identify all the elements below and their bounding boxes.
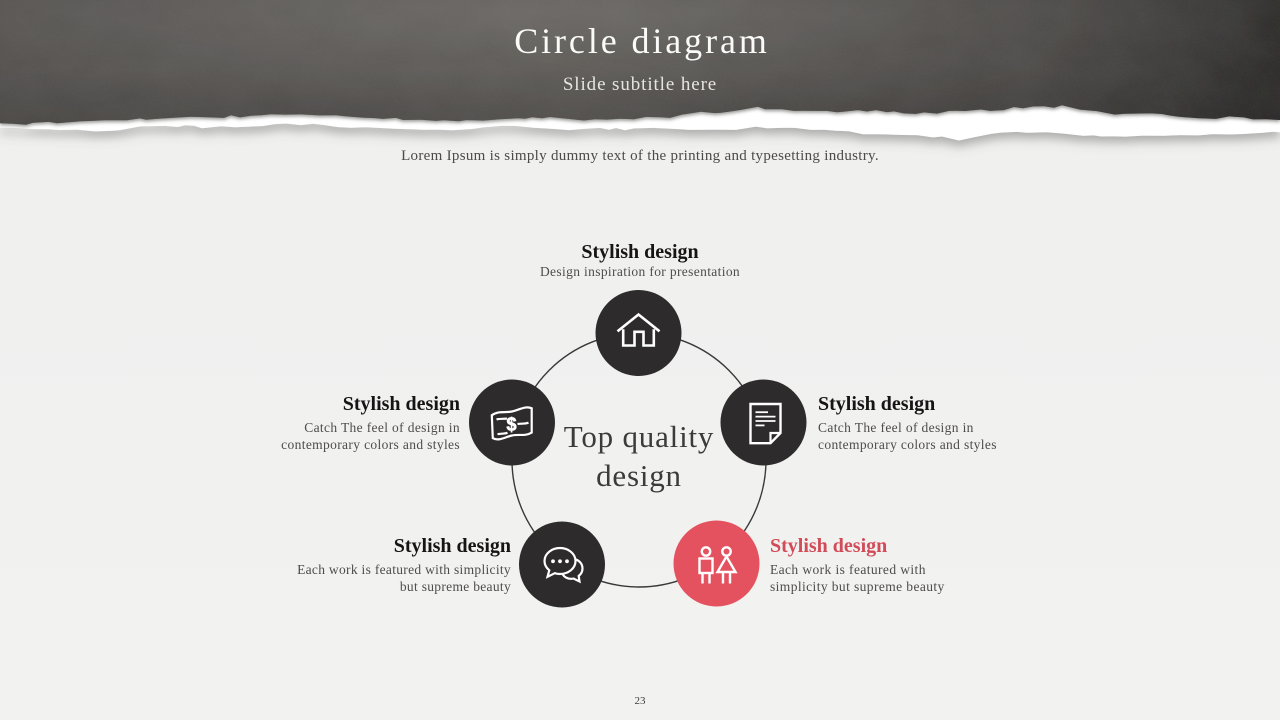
svg-text:$: $: [506, 415, 516, 435]
